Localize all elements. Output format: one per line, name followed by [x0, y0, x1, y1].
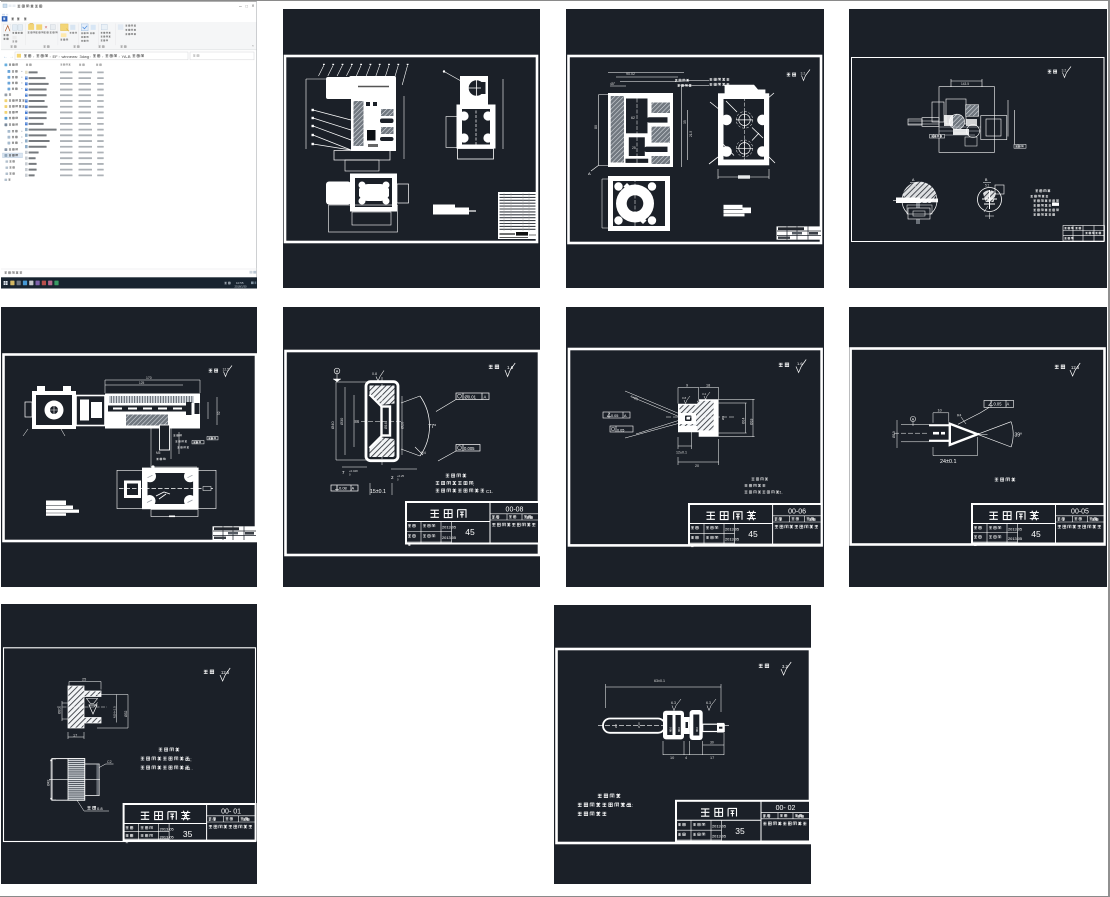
- svg-text:5:1: 5:1: [985, 184, 990, 188]
- svg-text:2013.05: 2013.05: [725, 527, 739, 532]
- svg-text:30: 30: [710, 741, 714, 745]
- svg-text:62: 62: [631, 116, 635, 120]
- svg-text:A: A: [484, 395, 487, 400]
- svg-text:2013.05: 2013.05: [1008, 527, 1022, 532]
- svg-text:3.2: 3.2: [801, 72, 806, 76]
- svg-text:35: 35: [683, 120, 687, 124]
- svg-text:45: 45: [465, 527, 475, 537]
- svg-text:C1:: C1:: [626, 803, 633, 808]
- svg-text:9: 9: [686, 384, 688, 388]
- svg-text:77°: 77°: [428, 424, 436, 430]
- svg-text:Ø8: Ø8: [657, 147, 661, 151]
- svg-text:Ø10: Ø10: [892, 431, 896, 438]
- svg-text:Ø30: Ø30: [340, 418, 344, 425]
- svg-text:2013.05: 2013.05: [725, 537, 739, 542]
- svg-text:1 : 1: 1 : 1: [492, 516, 499, 520]
- svg-text:;: ;: [473, 482, 474, 487]
- svg-text:7: 7: [342, 470, 345, 475]
- svg-text:00-05: 00-05: [1071, 508, 1089, 515]
- svg-text:C2: C2: [107, 760, 112, 764]
- svg-text:39°: 39°: [1015, 433, 1023, 439]
- svg-text:C1.: C1.: [486, 489, 493, 494]
- svg-text:125: 125: [139, 381, 145, 385]
- svg-text:17: 17: [73, 733, 77, 737]
- svg-text:M10: M10: [677, 726, 681, 732]
- svg-text:45: 45: [748, 529, 758, 539]
- svg-text:–: –: [239, 4, 242, 10]
- svg-text:2018/1/30: 2018/1/30: [235, 284, 247, 288]
- svg-text:Ø20: Ø20: [401, 422, 405, 429]
- svg-text:A: A: [336, 370, 339, 374]
- svg-text:C1;: C1;: [185, 757, 192, 762]
- svg-text:86: 86: [355, 419, 360, 424]
- svg-text:0: 0: [349, 473, 351, 477]
- svg-text:Ø18: Ø18: [750, 418, 754, 425]
- svg-text:Ø14: Ø14: [742, 417, 746, 424]
- svg-text:35: 35: [183, 829, 193, 839]
- svg-text:M10: M10: [669, 726, 673, 732]
- svg-text:3.2: 3.2: [702, 392, 707, 396]
- svg-text:35: 35: [735, 826, 745, 836]
- svg-text:80: 80: [594, 125, 598, 129]
- svg-text:21.5: 21.5: [689, 131, 693, 137]
- svg-text:Ø6: Ø6: [721, 416, 725, 420]
- svg-text:12±0.1: 12±0.1: [676, 451, 687, 455]
- svg-text:R1 .: R1 .: [185, 766, 193, 771]
- svg-text:Ø8: Ø8: [659, 118, 663, 122]
- svg-text:0.005: 0.005: [464, 446, 475, 451]
- svg-text:90.02: 90.02: [626, 72, 635, 76]
- svg-text:×: ×: [252, 4, 255, 10]
- svg-text:Ø20: Ø20: [58, 707, 62, 714]
- svg-text:2013.05: 2013.05: [160, 827, 174, 832]
- svg-text:R4: R4: [421, 451, 426, 455]
- svg-text:winnews: winnews: [62, 54, 77, 59]
- svg-text:4×Ø1: 4×Ø1: [630, 394, 639, 401]
- svg-text:20: 20: [695, 464, 699, 468]
- svg-text:6.3: 6.3: [706, 701, 711, 705]
- svg-text:10: 10: [670, 756, 674, 760]
- svg-text:00-08: 00-08: [506, 506, 524, 513]
- svg-text:A: A: [352, 486, 355, 491]
- svg-text:Ø32: Ø32: [124, 710, 128, 717]
- svg-text:17: 17: [710, 756, 714, 760]
- svg-text:⌃: ⌃: [251, 45, 255, 50]
- svg-text:Ø10: Ø10: [637, 722, 641, 728]
- svg-text:00- 01: 00- 01: [221, 808, 241, 815]
- svg-text:2013.05: 2013.05: [712, 833, 726, 838]
- svg-text:6.3: 6.3: [671, 701, 676, 705]
- svg-text:Ø16: Ø16: [384, 422, 388, 429]
- svg-text:0.8: 0.8: [682, 396, 687, 400]
- svg-text:24±0.1: 24±0.1: [940, 459, 956, 465]
- svg-text:←: ←: [3, 54, 8, 60]
- svg-text:2013.05: 2013.05: [712, 824, 726, 829]
- svg-text:Ø0.01: Ø0.01: [465, 395, 477, 400]
- svg-text:2: 2: [391, 475, 394, 480]
- svg-text:1 : 1: 1 : 1: [775, 518, 782, 522]
- svg-text:10: 10: [938, 409, 942, 413]
- svg-text:R4: R4: [957, 414, 961, 418]
- svg-text:1 : 1: 1 : 1: [763, 815, 770, 819]
- svg-text:143.5: 143.5: [961, 82, 969, 86]
- svg-text:Ø40: Ø40: [330, 421, 335, 429]
- svg-text:45: 45: [1031, 529, 1041, 539]
- svg-text:52: 52: [217, 411, 221, 415]
- svg-text:00-06: 00-06: [788, 508, 806, 515]
- svg-text:3dwg: 3dwg: [80, 54, 90, 59]
- svg-text:0.05: 0.05: [617, 428, 624, 432]
- svg-text:0.8: 0.8: [372, 372, 377, 376]
- svg-text:00- 02: 00- 02: [776, 805, 796, 812]
- svg-text:A: A: [1007, 402, 1010, 407]
- svg-text:15±0.1: 15±0.1: [370, 489, 386, 495]
- svg-text:5:1: 5:1: [912, 184, 917, 188]
- svg-text:Ø42: Ø42: [47, 779, 51, 786]
- svg-text:×: ×: [44, 25, 47, 31]
- svg-text:170: 170: [146, 376, 152, 380]
- svg-text:YA-B: YA-B: [122, 54, 131, 59]
- svg-text:3.2: 3.2: [782, 664, 788, 669]
- svg-text:18: 18: [706, 384, 710, 388]
- svg-text:2013.05: 2013.05: [160, 835, 174, 840]
- svg-text:M24×1.5: M24×1.5: [113, 706, 117, 718]
- svg-text:10:55: 10:55: [236, 281, 244, 285]
- svg-text:4: 4: [685, 756, 687, 760]
- svg-text:0.05: 0.05: [611, 414, 618, 418]
- svg-text:0: 0: [397, 478, 399, 482]
- svg-text:0.08: 0.08: [339, 486, 348, 491]
- svg-text:25: 25: [632, 146, 636, 150]
- svg-text:A: A: [912, 178, 915, 182]
- svg-text:2013.05: 2013.05: [442, 535, 456, 540]
- svg-text:M10: M10: [695, 726, 699, 732]
- svg-text:45°: 45°: [610, 82, 616, 86]
- svg-text:0.05: 0.05: [994, 402, 1003, 407]
- svg-text:1 : 1: 1 : 1: [1058, 518, 1065, 522]
- svg-text:A: A: [588, 171, 591, 176]
- svg-text:2013.05: 2013.05: [1008, 536, 1022, 541]
- svg-text:2013.05: 2013.05: [442, 525, 456, 530]
- svg-text:12.5: 12.5: [223, 368, 230, 372]
- svg-text:63±0.1: 63±0.1: [654, 679, 665, 683]
- svg-text:→: →: [9, 54, 14, 60]
- svg-text:0.8: 0.8: [97, 806, 103, 811]
- svg-text:Ø8: Ø8: [614, 724, 618, 728]
- svg-text:C1.: C1.: [777, 491, 783, 495]
- svg-text:3.2: 3.2: [1062, 69, 1067, 73]
- svg-text:25: 25: [82, 678, 86, 682]
- svg-text:EF: EF: [53, 54, 59, 59]
- svg-text:B: B: [985, 178, 988, 182]
- svg-text:M5: M5: [156, 451, 161, 455]
- svg-text:1 : 1: 1 : 1: [209, 818, 216, 822]
